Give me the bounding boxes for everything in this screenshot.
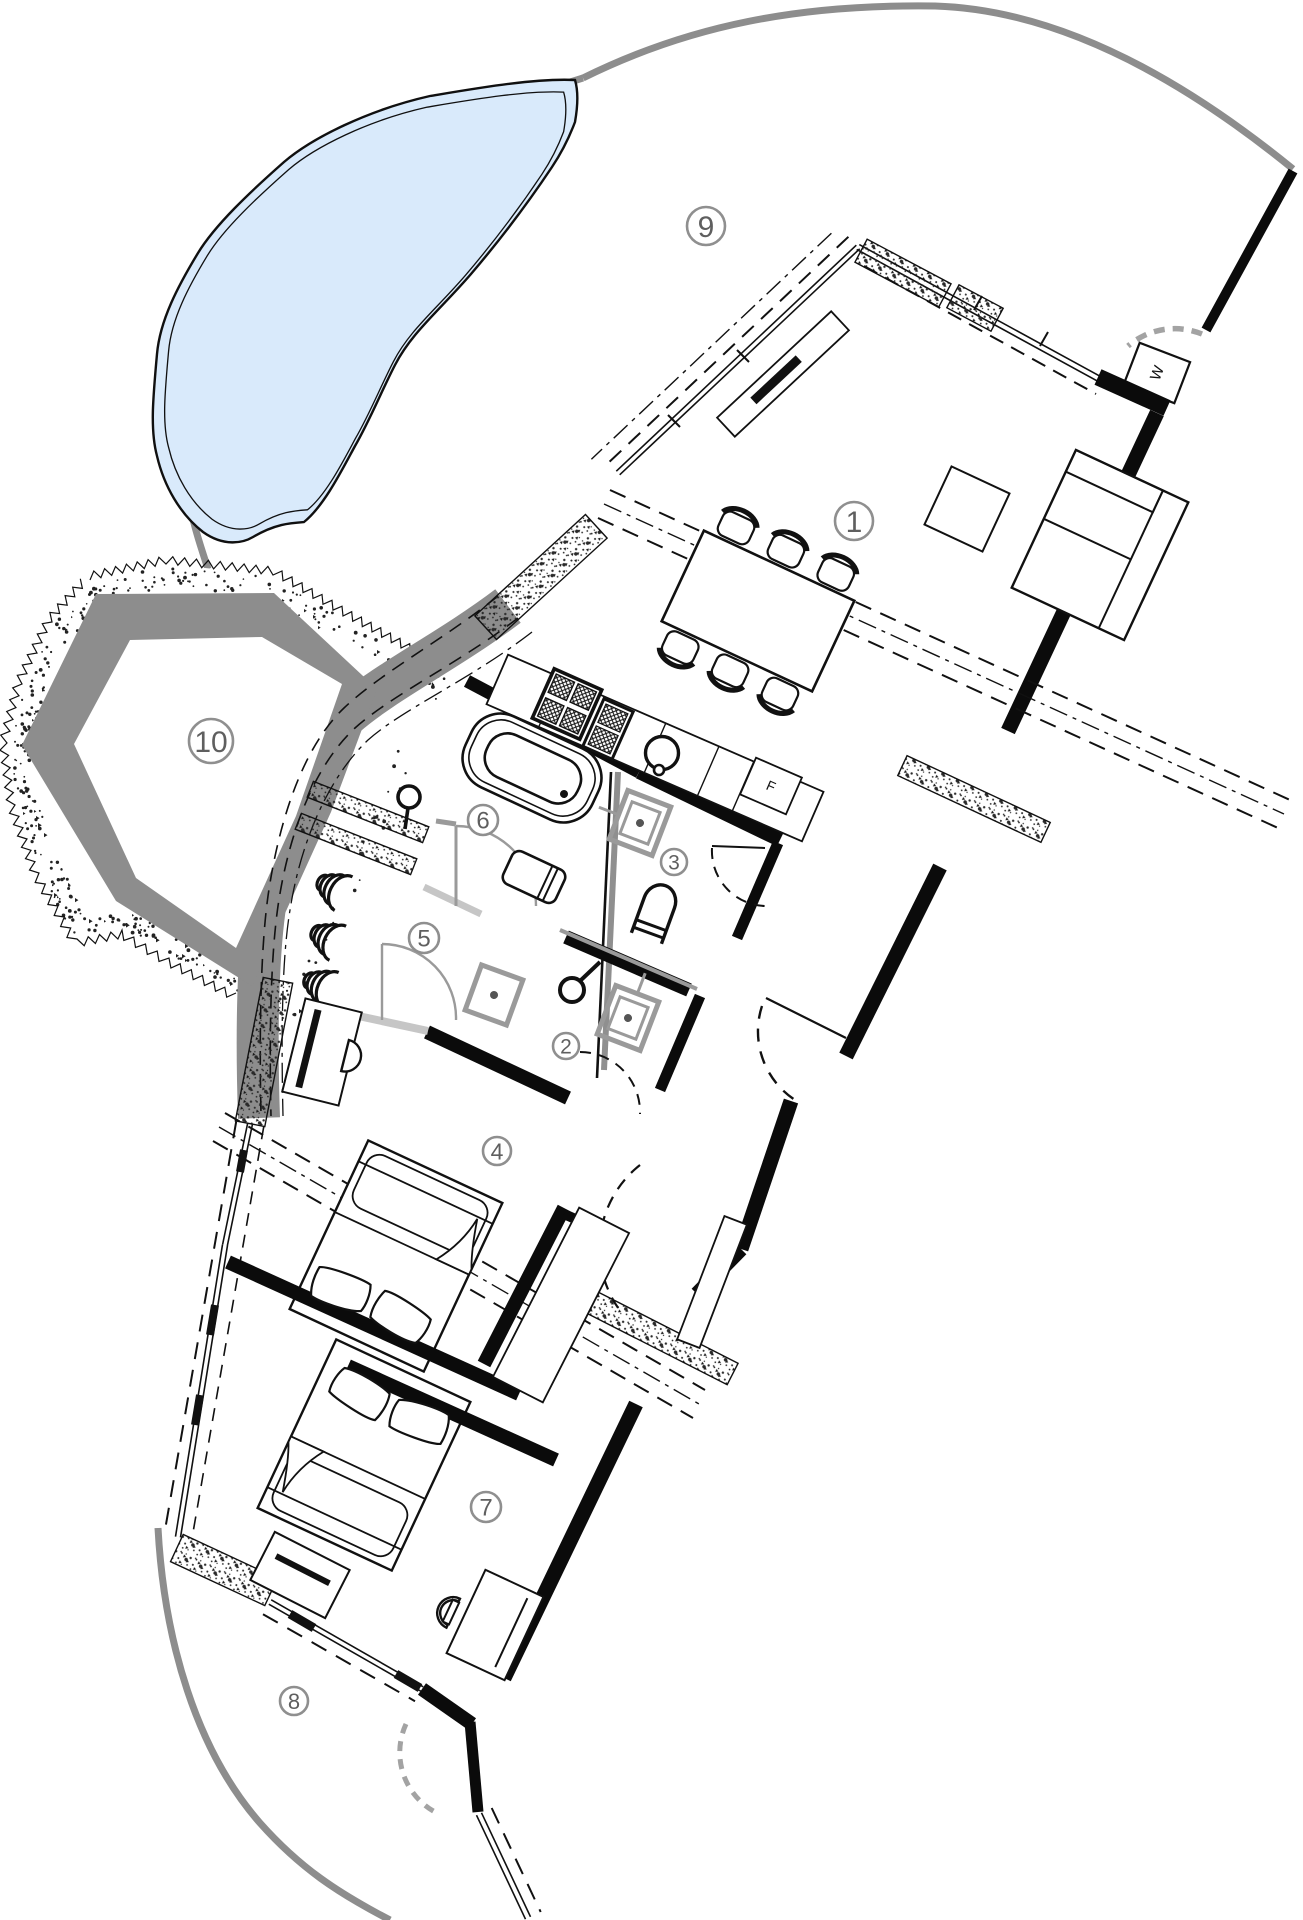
svg-text:10: 10 <box>194 726 227 759</box>
svg-text:2: 2 <box>560 1036 572 1059</box>
svg-text:1: 1 <box>846 506 863 539</box>
svg-text:9: 9 <box>698 211 715 244</box>
svg-text:5: 5 <box>417 926 430 953</box>
svg-text:6: 6 <box>476 808 489 835</box>
svg-text:8: 8 <box>288 1689 300 1714</box>
svg-text:7: 7 <box>479 1495 492 1522</box>
svg-text:4: 4 <box>491 1138 504 1164</box>
svg-text:3: 3 <box>668 852 680 875</box>
